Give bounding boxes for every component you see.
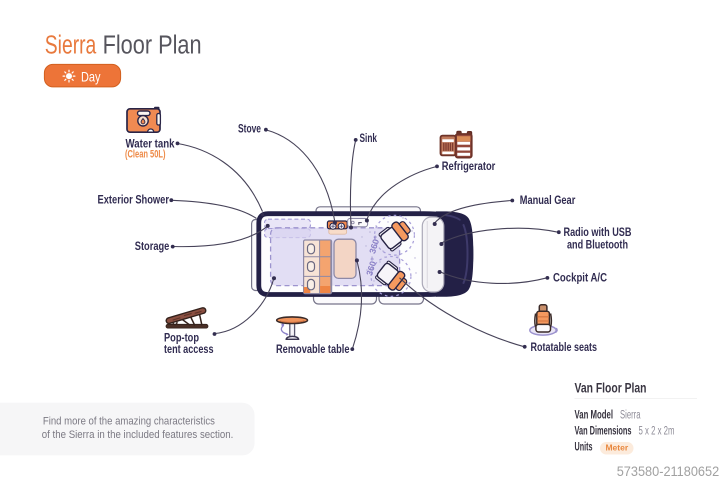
svg-text:Manual Gear: Manual Gear (520, 195, 576, 207)
svg-text:Sink: Sink (360, 133, 378, 145)
svg-text:Meter: Meter (605, 443, 628, 453)
svg-text:of the Sierra in the included: of the Sierra in the included features s… (42, 429, 234, 441)
svg-text:5 x 2 x 2m: 5 x 2 x 2m (639, 426, 675, 438)
svg-text:Van Floor Plan: Van Floor Plan (575, 381, 647, 396)
svg-text:Stove: Stove (238, 123, 261, 135)
svg-text:Van Model: Van Model (575, 410, 614, 422)
svg-text:Sierra: Sierra (620, 410, 641, 422)
svg-text:Pop-top: Pop-top (164, 332, 199, 344)
svg-text:Find more of the amazing chara: Find more of the amazing characteristics (43, 416, 215, 428)
svg-text:Cockpit A/C: Cockpit A/C (553, 272, 607, 284)
svg-text:573580-21180652: 573580-21180652 (617, 463, 720, 479)
svg-text:Day: Day (81, 68, 101, 84)
svg-text:Refrigerator: Refrigerator (442, 161, 496, 173)
svg-text:and Bluetooth: and Bluetooth (567, 240, 628, 252)
svg-text:Floor Plan: Floor Plan (103, 32, 202, 60)
svg-text:Units: Units (575, 442, 593, 454)
svg-text:(Clean 50L): (Clean 50L) (125, 148, 166, 160)
svg-text:Sierra: Sierra (45, 32, 97, 60)
svg-text:Removable table: Removable table (276, 344, 350, 356)
svg-text:Exterior Shower: Exterior Shower (98, 194, 170, 206)
svg-text:Rotatable seats: Rotatable seats (531, 342, 598, 354)
svg-text:Radio with USB: Radio with USB (564, 227, 632, 239)
svg-text:tent access: tent access (164, 344, 214, 356)
svg-text:Storage: Storage (135, 241, 170, 253)
svg-text:Van Dimensions: Van Dimensions (575, 426, 632, 438)
